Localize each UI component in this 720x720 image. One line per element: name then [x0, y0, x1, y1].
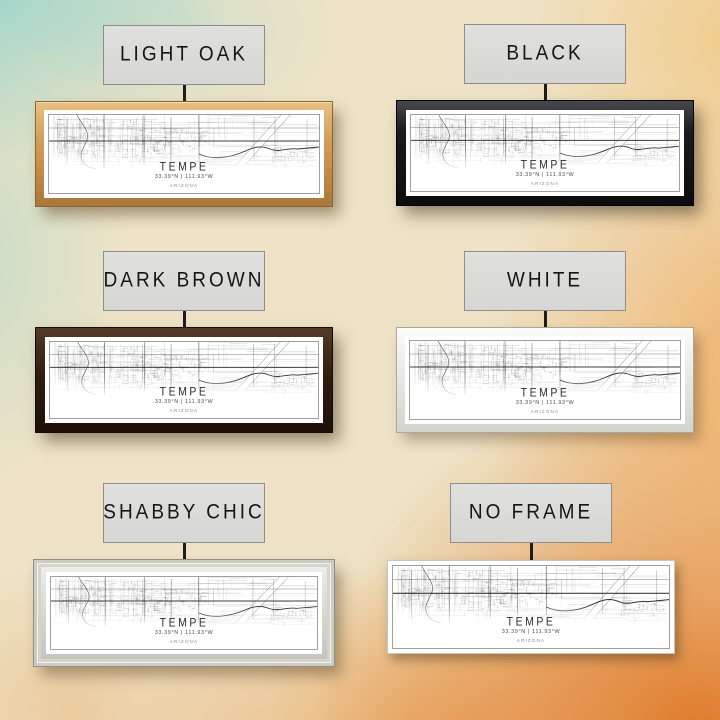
map-print: TEMPE 33.39°N | 111.93°W ARIZONA [387, 560, 675, 654]
framed-map-print-light-oak: TEMPE 33.39°N | 111.93°W ARIZONA [36, 102, 332, 206]
map-city-title: TEMPE [393, 616, 669, 628]
print-border: TEMPE 33.39°N | 111.93°W ARIZONA [49, 341, 319, 419]
option-label: BLACK [506, 42, 583, 67]
connector-line [544, 311, 547, 328]
option-label-box: LIGHT OAK [103, 25, 265, 85]
map-city-title: TEMPE [51, 617, 317, 629]
map-print: TEMPE 33.39°N | 111.93°W ARIZONA [405, 336, 685, 424]
print-caption: TEMPE 33.39°N | 111.93°W ARIZONA [411, 160, 679, 186]
map-coordinates: 33.39°N | 111.93°W [51, 631, 317, 637]
print-caption: TEMPE 33.39°N | 111.93°W ARIZONA [50, 387, 318, 413]
option-label: NO FRAME [469, 501, 593, 526]
map-state-label: ARIZONA [50, 409, 318, 414]
framed-map-print-dark-brown: TEMPE 33.39°N | 111.93°W ARIZONA [36, 328, 332, 432]
print-border: TEMPE 33.39°N | 111.93°W ARIZONA [409, 340, 681, 420]
map-coordinates: 33.39°N | 111.93°W [50, 400, 318, 406]
print-caption: TEMPE 33.39°N | 111.93°W ARIZONA [410, 388, 680, 414]
map-state-label: ARIZONA [49, 184, 319, 189]
map-state-label: ARIZONA [393, 639, 669, 644]
map-city-title: TEMPE [49, 161, 319, 173]
map-print: TEMPE 33.39°N | 111.93°W ARIZONA [44, 110, 324, 198]
frame-option-no-frame: NO FRAME TEMPE 33.39°N | 111.93°W ARIZON… [366, 483, 696, 654]
map-coordinates: 33.39°N | 111.93°W [393, 630, 669, 636]
print-border: TEMPE 33.39°N | 111.93°W ARIZONA [48, 114, 320, 194]
frame-option-white: WHITE TEMPE 33.39°N | 111.93°W ARIZONA [380, 251, 710, 432]
map-print: TEMPE 33.39°N | 111.93°W ARIZONA [406, 110, 684, 196]
map-coordinates: 33.39°N | 111.93°W [410, 401, 680, 407]
print-caption: TEMPE 33.39°N | 111.93°W ARIZONA [51, 618, 317, 644]
framed-map-print-shabby-chic: TEMPE 33.39°N | 111.93°W ARIZONA [34, 560, 334, 666]
frame-option-black: BLACK TEMPE 33.39°N | 111.93°W ARIZONA [380, 24, 710, 205]
map-state-label: ARIZONA [411, 182, 679, 187]
connector-line [530, 543, 533, 560]
print-caption: TEMPE 33.39°N | 111.93°W ARIZONA [49, 162, 319, 188]
map-print: TEMPE 33.39°N | 111.93°W ARIZONA [45, 337, 323, 423]
framed-map-print-black: TEMPE 33.39°N | 111.93°W ARIZONA [397, 101, 693, 205]
option-label: SHABBY CHIC [103, 501, 264, 526]
frame-option-light-oak: LIGHT OAK TEMPE 33.39°N | 111.93°W ARIZO… [19, 25, 349, 206]
option-label-box: SHABBY CHIC [103, 483, 265, 543]
framed-map-print-white: TEMPE 33.39°N | 111.93°W ARIZONA [397, 328, 693, 432]
map-print: TEMPE 33.39°N | 111.93°W ARIZONA [46, 572, 322, 654]
connector-line [183, 311, 186, 328]
connector-line [183, 543, 186, 560]
print-border: TEMPE 33.39°N | 111.93°W ARIZONA [410, 114, 680, 192]
option-label: DARK BROWN [104, 269, 265, 294]
print-caption: TEMPE 33.39°N | 111.93°W ARIZONA [393, 617, 669, 643]
option-label-box: BLACK [464, 24, 626, 84]
map-city-title: TEMPE [411, 159, 679, 171]
print-border: TEMPE 33.39°N | 111.93°W ARIZONA [392, 565, 670, 649]
unframed-map-print: TEMPE 33.39°N | 111.93°W ARIZONA [387, 560, 675, 654]
connector-line [183, 85, 186, 102]
option-label: WHITE [507, 269, 583, 294]
frame-option-shabby-chic: SHABBY CHIC TEMPE 33.39°N | 111.93°W ARI… [19, 483, 349, 666]
map-state-label: ARIZONA [410, 410, 680, 415]
connector-line [544, 84, 547, 101]
map-coordinates: 33.39°N | 111.93°W [49, 175, 319, 181]
frame-options-board: { "print": { "city": "TEMPE", "coordinat… [0, 0, 720, 720]
option-label-box: WHITE [464, 251, 626, 311]
option-label-box: NO FRAME [450, 483, 612, 543]
print-border: TEMPE 33.39°N | 111.93°W ARIZONA [50, 576, 318, 650]
map-coordinates: 33.39°N | 111.93°W [411, 173, 679, 179]
map-city-title: TEMPE [50, 386, 318, 398]
map-state-label: ARIZONA [51, 640, 317, 645]
map-city-title: TEMPE [410, 387, 680, 399]
frame-option-dark-brown: DARK BROWN TEMPE 33.39°N | 111.93°W ARIZ… [19, 251, 349, 432]
option-label: LIGHT OAK [120, 43, 248, 68]
option-label-box: DARK BROWN [103, 251, 265, 311]
